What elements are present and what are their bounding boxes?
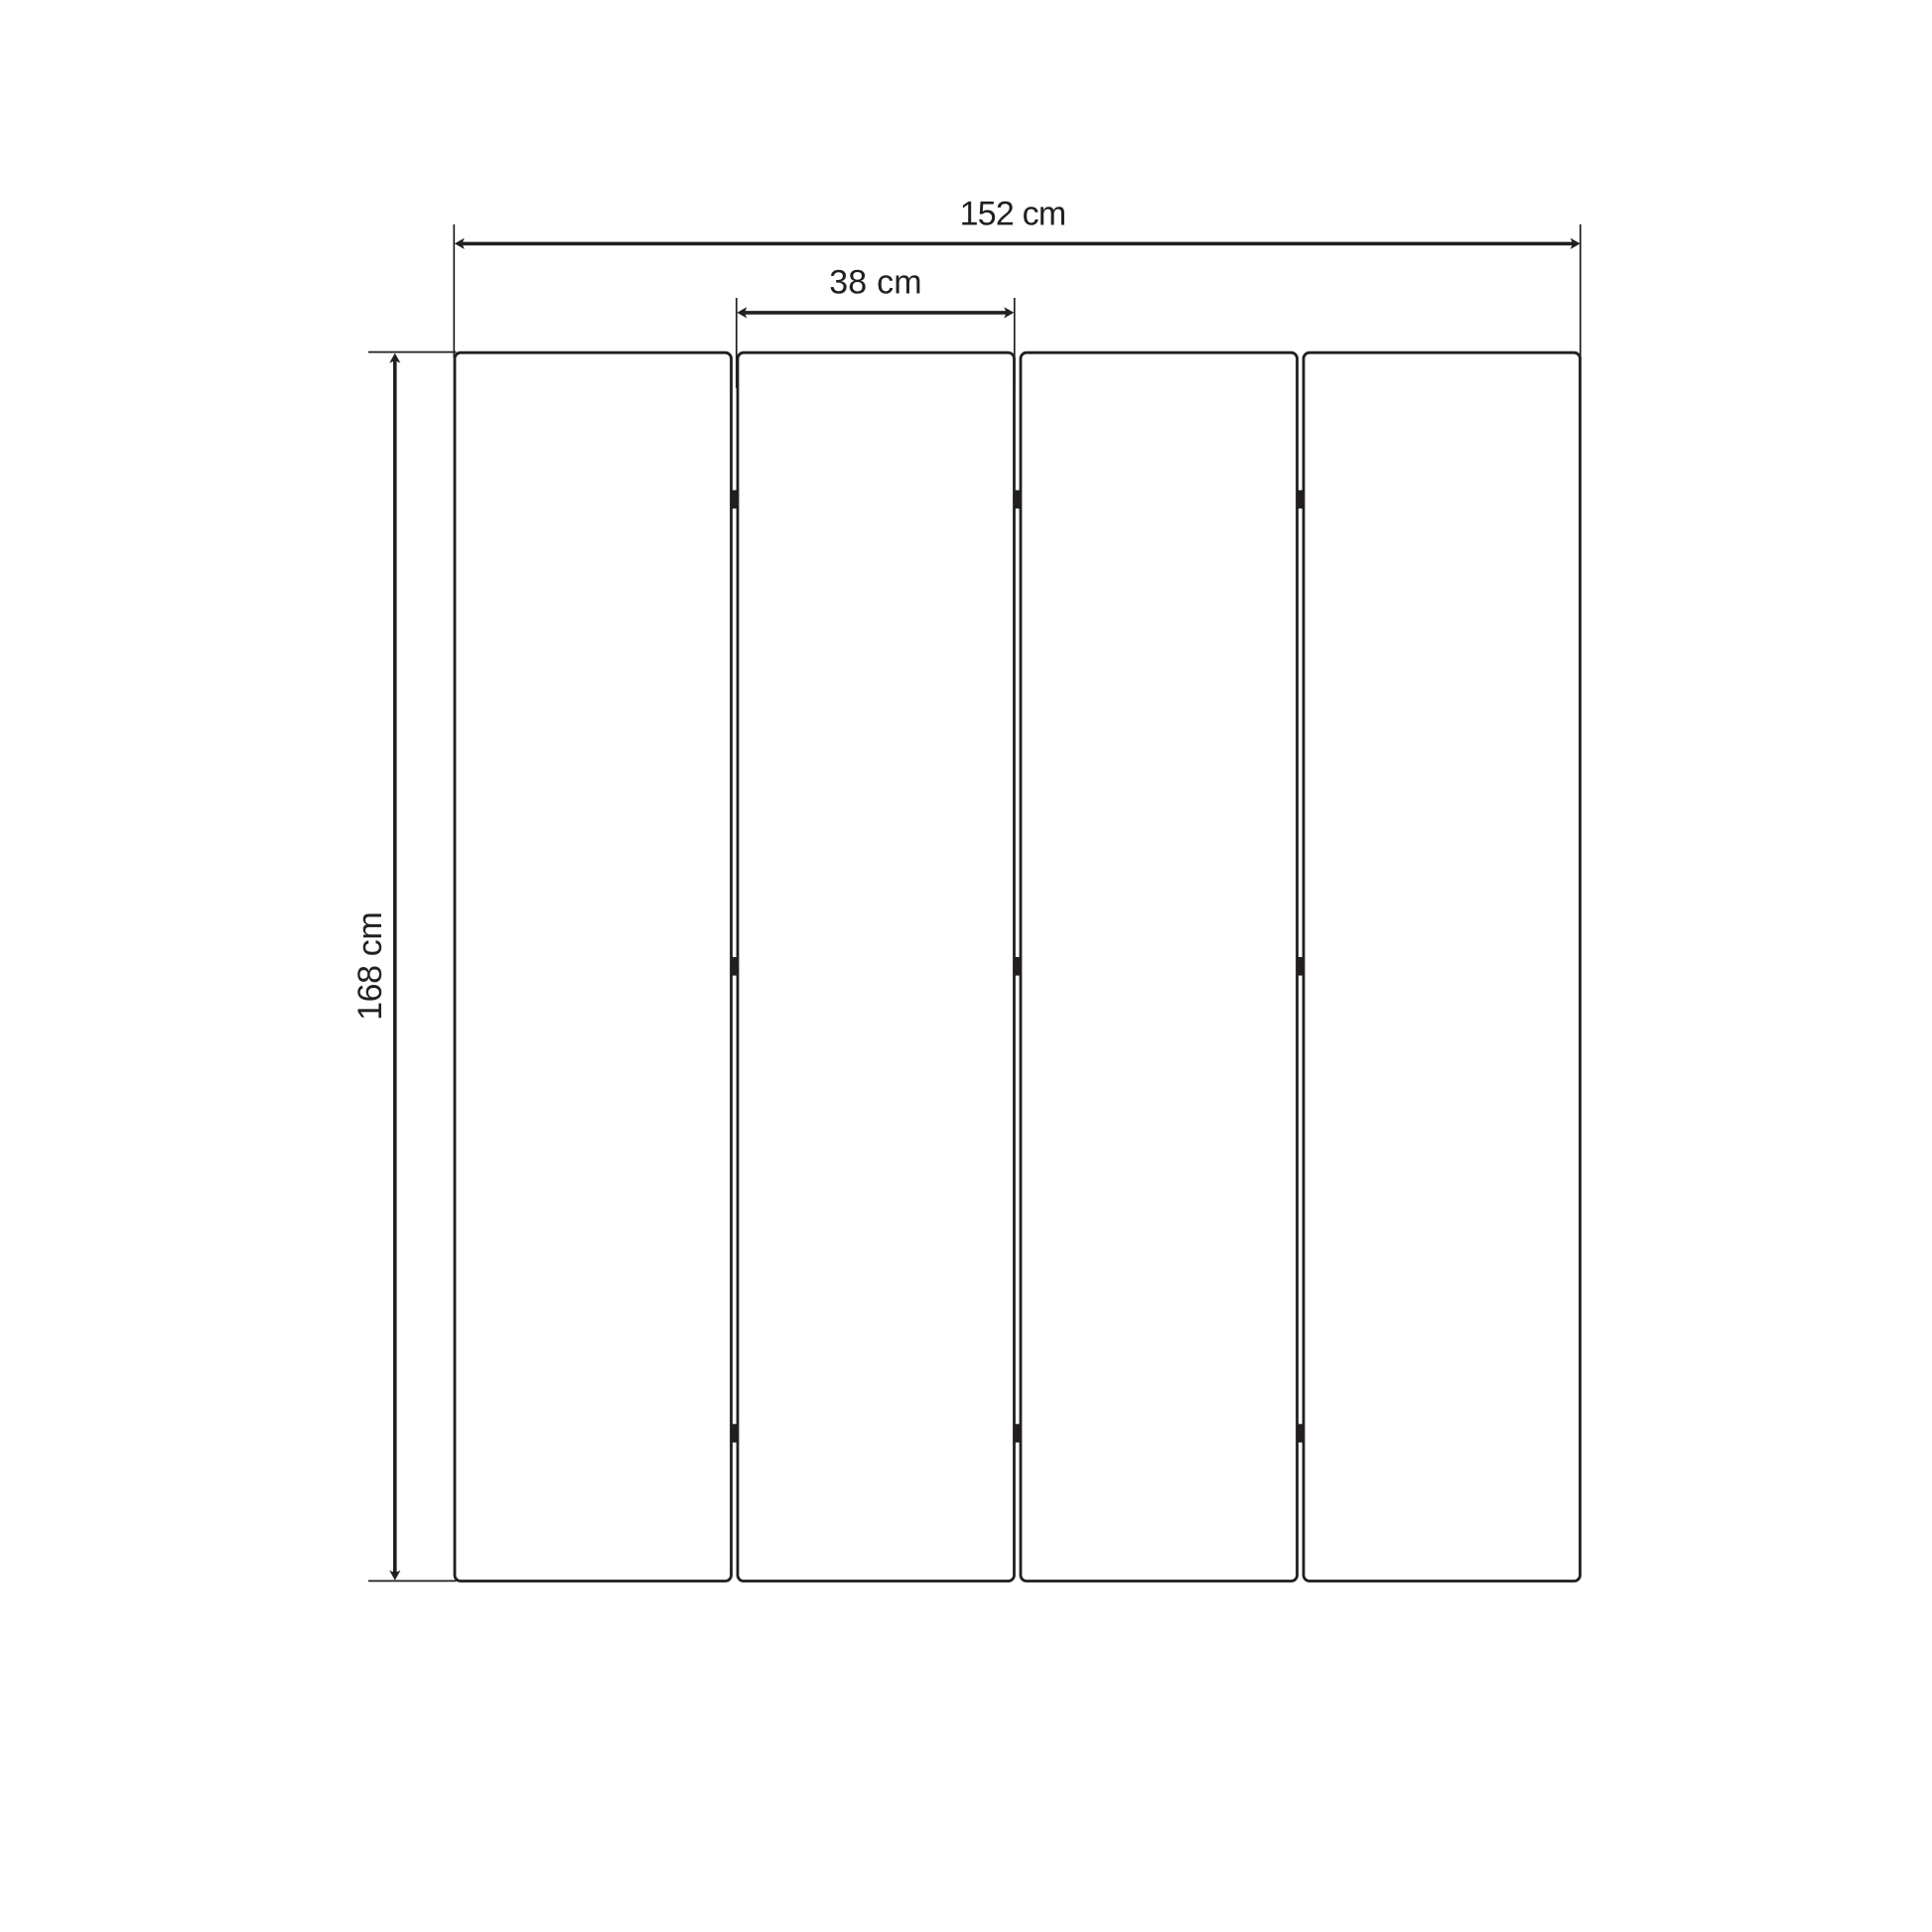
svg-text:152 cm: 152 cm xyxy=(960,196,1066,233)
svg-text:168 cm: 168 cm xyxy=(351,912,389,1021)
svg-text:38 cm: 38 cm xyxy=(829,264,922,302)
